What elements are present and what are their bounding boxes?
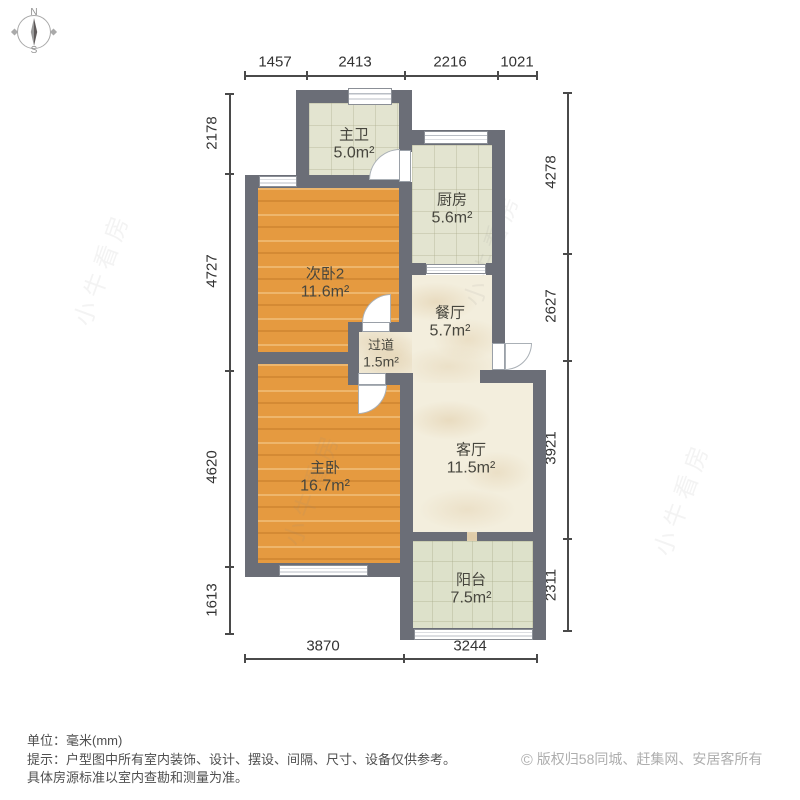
dim-left-4: 1613: [204, 583, 221, 616]
floorplan-canvas: N S 小牛看房 小牛看房 小牛看房 小牛看房 1457 2413 2216 1…: [0, 0, 800, 800]
compass-icon: N S: [12, 10, 56, 54]
dim-top-1: 1457: [258, 54, 291, 71]
dim-left-2: 4727: [204, 254, 221, 287]
dimension-line-top: [244, 75, 538, 77]
dimension-line-left: [229, 93, 231, 635]
wall: [296, 90, 309, 188]
wall: [400, 373, 413, 640]
dim-bottom-2: 3244: [453, 638, 486, 655]
wall: [348, 373, 358, 385]
room-label-balcony: 阳台 7.5m²: [451, 569, 492, 608]
room-label-bedroom2: 次卧2 11.6m²: [301, 263, 350, 302]
wall: [533, 370, 546, 640]
dimension-line-right: [567, 92, 569, 632]
door-leaf-master-bath: [399, 150, 411, 182]
door-leaf-entrance: [492, 343, 505, 370]
window-bedroom2: [259, 176, 297, 187]
room-label-kitchen: 厨房 5.6m²: [432, 189, 473, 228]
room-area: 7.5m²: [451, 590, 492, 608]
window-balcony: [414, 629, 533, 640]
watermark-text: 小牛看房: [643, 435, 717, 560]
room-label-living: 客厅 11.5m²: [447, 439, 496, 478]
dim-top-4: 1021: [500, 54, 533, 71]
room-label-master-bath: 主卫 5.0m²: [334, 124, 375, 163]
wall: [477, 532, 533, 541]
dim-right-1: 4278: [543, 155, 560, 188]
dim-right-2: 2627: [543, 289, 560, 322]
floor-balcony-opening: [467, 532, 477, 541]
window-kitchen: [424, 131, 488, 144]
room-area: 11.6m²: [301, 284, 350, 302]
window-master-bath: [348, 88, 392, 105]
room-area: 1.5m²: [363, 354, 399, 370]
unit-note: 单位：毫米(mm): [27, 730, 122, 749]
door-leaf-bedroom2: [362, 322, 390, 332]
door-arc-entrance: [505, 343, 532, 370]
wall: [399, 263, 426, 275]
room-name: 主卧: [300, 457, 350, 478]
room-name: 阳台: [451, 569, 492, 590]
tip-line-2: 具体房源标准以室内查勘和测量为准。: [27, 767, 248, 786]
watermark-text: 小牛看房: [63, 205, 137, 330]
room-area: 5.6m²: [432, 210, 473, 228]
dim-top-3: 2216: [433, 54, 466, 71]
dimension-line-bottom: [244, 658, 538, 660]
dim-bottom-1: 3870: [306, 638, 339, 655]
room-name: 主卫: [334, 124, 375, 145]
wall: [413, 532, 467, 541]
room-area: 11.5m²: [447, 460, 496, 478]
room-label-master-bedroom: 主卧 16.7m²: [300, 457, 350, 496]
room-name: 过道: [363, 335, 399, 354]
copyright-text: 版权归58同城、赶集网、安居客所有: [537, 751, 763, 767]
room-name: 客厅: [447, 439, 496, 460]
compass-south-label: S: [12, 46, 56, 56]
dim-top-2: 2413: [338, 54, 371, 71]
tip-line-1: 提示：户型图中所有室内装饰、设计、摆设、间隔、尺寸、设备仅供参考。: [27, 749, 456, 768]
wall: [492, 145, 505, 343]
wall: [245, 352, 359, 364]
room-area: 5.0m²: [334, 145, 375, 163]
room-area: 16.7m²: [300, 478, 350, 496]
room-name: 次卧2: [301, 263, 350, 284]
door-leaf-master-bedroom: [358, 373, 386, 385]
copyright-notice: ©版权归58同城、赶集网、安居客所有: [521, 749, 762, 770]
room-label-dining: 餐厅 5.7m²: [430, 302, 471, 341]
window-master-bedroom: [279, 565, 368, 576]
wall: [390, 322, 412, 332]
dim-left-1: 2178: [204, 116, 221, 149]
dim-left-3: 4620: [204, 450, 221, 483]
compass-north-label: N: [12, 8, 56, 18]
copyright-icon: ©: [521, 752, 533, 769]
room-area: 5.7m²: [430, 323, 471, 341]
room-name: 餐厅: [430, 302, 471, 323]
kitchen-opening-threshold: [426, 264, 486, 274]
room-name: 厨房: [432, 189, 473, 210]
compass-east-tick: [50, 28, 57, 35]
wall: [399, 188, 412, 332]
room-label-hallway: 过道 1.5m²: [363, 335, 399, 370]
wall: [245, 175, 258, 577]
